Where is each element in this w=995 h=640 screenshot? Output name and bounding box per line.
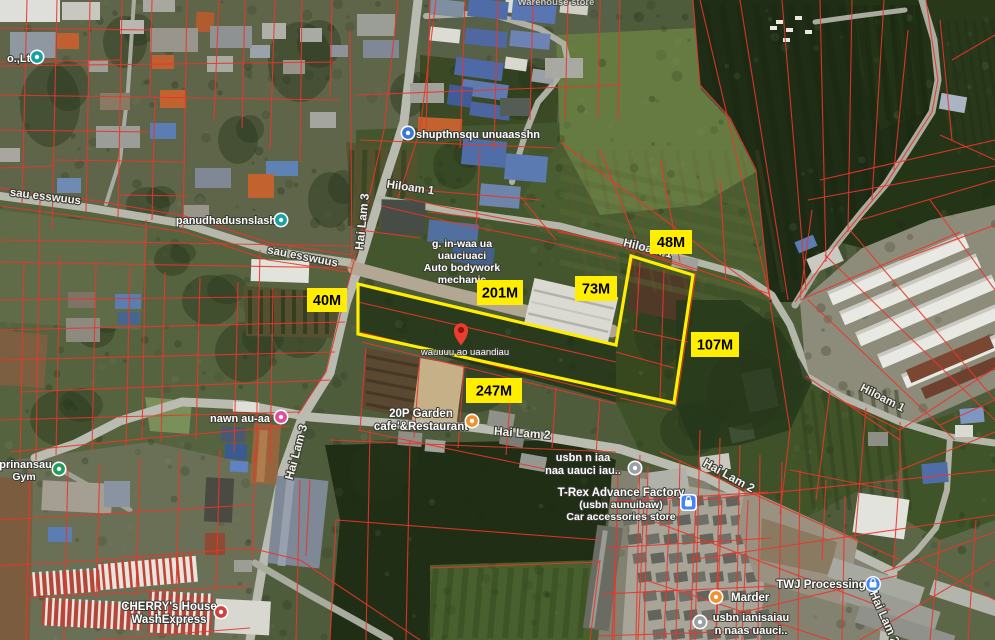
svg-text:(usbn aunuibaw): (usbn aunuibaw) bbox=[579, 499, 662, 511]
svg-text:g. in-waa ua: g. in-waa ua bbox=[432, 238, 492, 250]
svg-text:Car accessories store: Car accessories store bbox=[566, 511, 675, 523]
svg-text:TWJ Processing: TWJ Processing bbox=[776, 579, 865, 591]
svg-text:n naas uauci..: n naas uauci.. bbox=[715, 625, 788, 637]
svg-text:Warehouse store: Warehouse store bbox=[518, 0, 595, 8]
svg-text:Marder: Marder bbox=[731, 592, 770, 604]
svg-text:40M: 40M bbox=[313, 293, 341, 309]
svg-text:48M: 48M bbox=[657, 235, 685, 251]
svg-text:uauciuaci: uauciuaci bbox=[438, 250, 487, 262]
svg-text:nawn au-aa: nawn au-aa bbox=[210, 413, 271, 425]
svg-text:T-Rex Advance Factory: T-Rex Advance Factory bbox=[558, 487, 685, 499]
svg-text:CHERRY's House: CHERRY's House bbox=[121, 601, 217, 613]
svg-text:201M: 201M bbox=[482, 286, 518, 302]
svg-text:247M: 247M bbox=[476, 384, 512, 400]
svg-text:usbn n iaa: usbn n iaa bbox=[556, 452, 611, 464]
svg-text:cafe'&Restaurant: cafe'&Restaurant bbox=[374, 421, 468, 433]
svg-text:naa uauci iau..: naa uauci iau.. bbox=[545, 465, 621, 477]
svg-text:wauuuu ao uaandiau: wauuuu ao uaandiau bbox=[420, 347, 509, 358]
svg-text:107M: 107M bbox=[697, 338, 733, 354]
svg-text:20P Garden: 20P Garden bbox=[389, 408, 453, 420]
svg-text:WashExpress: WashExpress bbox=[132, 614, 207, 626]
svg-text:73M: 73M bbox=[582, 282, 610, 298]
svg-text:iprinansau: iprinansau bbox=[0, 459, 52, 471]
svg-text:usbn ianisaiau: usbn ianisaiau bbox=[713, 612, 789, 624]
svg-text:Auto bodywork: Auto bodywork bbox=[424, 262, 501, 274]
svg-text:panudhadusnslash: panudhadusnslash bbox=[176, 215, 277, 227]
svg-text:shupthnsqu unuaasshn: shupthnsqu unuaasshn bbox=[416, 129, 540, 141]
svg-text:Gym: Gym bbox=[12, 471, 35, 483]
